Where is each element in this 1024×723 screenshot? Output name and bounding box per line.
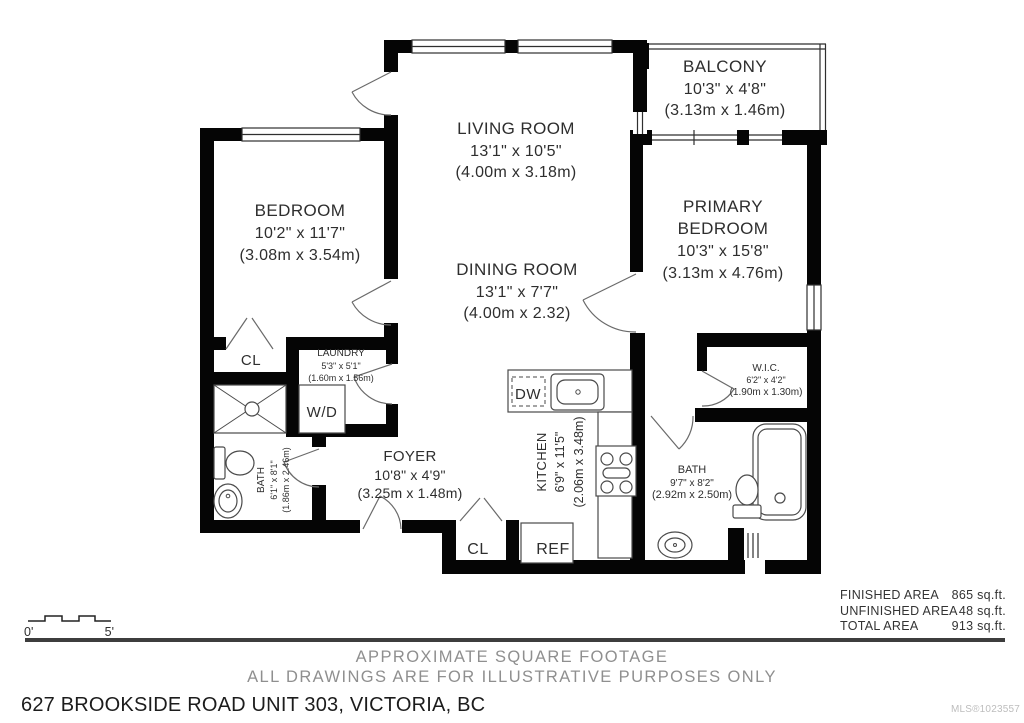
scale-end-label: 5' [105, 625, 114, 639]
balcony-bottom-window-icon [749, 130, 782, 145]
mls-number: MLS®1023557 [951, 704, 1020, 715]
svg-text:(1.60m x 1.56m): (1.60m x 1.56m) [308, 373, 374, 383]
svg-text:10'8" x 4'9": 10'8" x 4'9" [374, 467, 445, 483]
bath-louver-icon [748, 533, 758, 558]
room-label-primary-bedroom: PRIMARY BEDROOM 10'3" x 15'8" (3.13m x 4… [663, 197, 784, 282]
living-window-right-icon [518, 40, 612, 53]
svg-text:PRIMARY: PRIMARY [683, 197, 763, 216]
finished-area-row: FINISHED AREA 865 sq.ft. [840, 588, 1006, 604]
svg-text:(1.86m x 2.46m): (1.86m x 2.46m) [281, 447, 291, 513]
room-label-balcony: BALCONY 10'3" x 4'8" (3.13m x 1.46m) [665, 57, 786, 119]
living-door-icon [352, 72, 391, 115]
unfinished-area-value: 48 sq.ft. [959, 604, 1006, 620]
svg-text:13'1" x 7'7": 13'1" x 7'7" [476, 284, 558, 301]
room-label-dining: DINING ROOM 13'1" x 7'7" (4.00m x 2.32) [456, 260, 578, 322]
svg-text:6'1" x 8'1": 6'1" x 8'1" [269, 460, 279, 499]
area-summary-table: FINISHED AREA 865 sq.ft. UNFINISHED AREA… [840, 588, 1006, 635]
svg-text:KITCHEN: KITCHEN [534, 432, 549, 491]
foyer-closet-door-icon [460, 498, 502, 521]
property-address: 627 BROOKSIDE ROAD UNIT 303, VICTORIA, B… [21, 694, 485, 717]
svg-text:10'2" x 11'7": 10'2" x 11'7" [255, 225, 345, 242]
bedroom-window-icon [242, 128, 360, 141]
balcony-bottom-slider-icon [652, 130, 737, 145]
scale-bar: 0' 5' [24, 616, 114, 639]
room-label-living: LIVING ROOM 13'1" x 10'5" (4.00m x 3.18m… [456, 119, 577, 181]
bedroom-door-icon [352, 281, 391, 325]
finished-area-label: FINISHED AREA [840, 588, 939, 604]
footer-divider [25, 638, 1005, 642]
svg-text:(2.06m x 3.48m): (2.06m x 3.48m) [572, 416, 586, 507]
sink-icon [214, 484, 242, 518]
living-window-left-icon [412, 40, 505, 53]
unfinished-area-label: UNFINISHED AREA [840, 604, 958, 620]
kitchen-sink-icon [551, 374, 604, 410]
svg-text:6'9" x 11'5": 6'9" x 11'5" [553, 432, 567, 493]
svg-text:(1.90m x 1.30m): (1.90m x 1.30m) [730, 387, 803, 398]
svg-text:DINING ROOM: DINING ROOM [456, 260, 578, 279]
shower-icon [214, 385, 286, 433]
svg-text:(4.00m x 2.32): (4.00m x 2.32) [463, 305, 570, 322]
svg-text:(3.13m x 4.76m): (3.13m x 4.76m) [663, 265, 784, 282]
svg-text:(3.13m x 1.46m): (3.13m x 1.46m) [665, 102, 786, 119]
bedroom-closet-door-icon [226, 318, 273, 349]
svg-text:(3.08m x 3.54m): (3.08m x 3.54m) [240, 247, 361, 264]
dishwasher-label: DW [515, 386, 541, 403]
scale-start-label: 0' [24, 625, 33, 639]
room-label-wic: W.I.C. 6'2" x 4'2" (1.90m x 1.30m) [730, 363, 803, 398]
room-label-ensuite-bath: BATH 9'7" x 8'2" (2.92m x 2.50m) [652, 464, 732, 501]
svg-text:BATH: BATH [256, 467, 267, 493]
primary-window-icon [807, 285, 821, 330]
svg-text:5'3" x 5'1": 5'3" x 5'1" [321, 361, 360, 371]
total-area-label: TOTAL AREA [840, 619, 919, 635]
washer-dryer-label: W/D [307, 404, 338, 421]
svg-text:10'3" x 4'8": 10'3" x 4'8" [684, 81, 766, 98]
ensuite-bath-door-icon [651, 416, 693, 449]
total-area-row: TOTAL AREA 913 sq.ft. [840, 619, 1006, 635]
primary-door-icon [583, 274, 636, 332]
total-area-value: 913 sq.ft. [952, 619, 1006, 635]
fridge-label: REF [536, 541, 570, 558]
svg-text:6'2" x 4'2": 6'2" x 4'2" [746, 375, 785, 385]
svg-text:LIVING ROOM: LIVING ROOM [457, 119, 575, 138]
svg-text:W.I.C.: W.I.C. [752, 363, 779, 374]
svg-text:BATH: BATH [678, 464, 707, 476]
svg-text:(3.25m x 1.48m): (3.25m x 1.48m) [358, 485, 463, 501]
room-label-kitchen: KITCHEN 6'9" x 11'5" (2.06m x 3.48m) [534, 416, 586, 507]
svg-text:(4.00m x 3.18m): (4.00m x 3.18m) [456, 164, 577, 181]
balcony-slider-door-icon [633, 112, 647, 134]
svg-text:BEDROOM: BEDROOM [678, 219, 769, 238]
unfinished-area-row: UNFINISHED AREA 48 sq.ft. [840, 604, 1006, 620]
toilet-icon [214, 447, 254, 479]
disclaimer-line1: APPROXIMATE SQUARE FOOTAGE [0, 647, 1024, 667]
svg-text:(2.92m x 2.50m): (2.92m x 2.50m) [652, 489, 732, 501]
floor-plan-page: LIVING ROOM 13'1" x 10'5" (4.00m x 3.18m… [0, 0, 1024, 723]
room-label-bedroom: BEDROOM 10'2" x 11'7" (3.08m x 3.54m) [240, 201, 361, 264]
svg-text:9'7" x 8'2": 9'7" x 8'2" [670, 478, 714, 489]
svg-text:BALCONY: BALCONY [683, 57, 767, 76]
svg-text:BEDROOM: BEDROOM [255, 201, 346, 220]
stove-icon [596, 446, 636, 496]
svg-text:FOYER: FOYER [383, 448, 436, 465]
room-label-foyer: FOYER 10'8" x 4'9" (3.25m x 1.48m) [358, 448, 463, 501]
svg-text:10'3" x 15'8": 10'3" x 15'8" [677, 243, 769, 260]
ensuite-sink-icon [658, 532, 692, 558]
svg-text:LAUNDRY: LAUNDRY [317, 348, 365, 359]
finished-area-value: 865 sq.ft. [952, 588, 1006, 604]
closet-label: CL [241, 352, 261, 369]
room-label-laundry: LAUNDRY 5'3" x 5'1" (1.60m x 1.56m) [308, 348, 374, 383]
disclaimer-line2: ALL DRAWINGS ARE FOR ILLUSTRATIVE PURPOS… [0, 667, 1024, 687]
room-label-main-bath: BATH 6'1" x 8'1" (1.86m x 2.46m) [256, 447, 291, 513]
disclaimer: APPROXIMATE SQUARE FOOTAGE ALL DRAWINGS … [0, 647, 1024, 687]
svg-text:13'1" x 10'5": 13'1" x 10'5" [470, 143, 562, 160]
foyer-closet-label: CL [467, 541, 488, 558]
